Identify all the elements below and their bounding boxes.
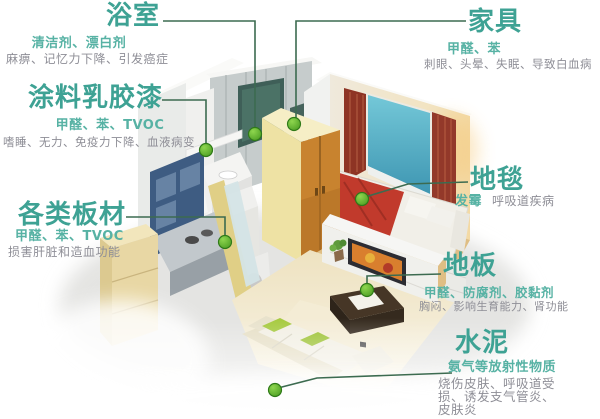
marker-cement [269, 384, 282, 397]
callout-cement-title: 水泥 [455, 329, 509, 359]
callout-cement-pollutants: 氨气等放射性物质 [448, 361, 556, 376]
callout-carpet-effects: 呼吸道疾病 [492, 194, 555, 208]
callout-floor-title: 地板 [443, 252, 497, 282]
callout-boards-title: 各类板材 [18, 201, 126, 231]
marker-boards [219, 236, 232, 249]
marker-floor [361, 284, 374, 297]
callout-floor-effects: 胸闷、影响生育能力、肾功能 [419, 301, 569, 314]
callout-furniture-effects: 刺眼、头晕、失眠、导致白血病 [424, 58, 592, 71]
marker-carpet [356, 193, 369, 206]
callout-paint-effects: 嗜睡、无力、免疫力下降、血液病变 [3, 136, 195, 149]
callout-bathroom-effects: 麻痹、记忆力下降、引发癌症 [6, 53, 169, 67]
infographic-indoor-pollution: 浴室 清洁剂、漂白剂 麻痹、记忆力下降、引发癌症 涂料乳胶漆 甲醛、苯、TVOC… [0, 0, 600, 419]
callout-floor-pollutants: 甲醛、防腐剂、胶黏剂 [424, 286, 554, 300]
callout-bathroom-title: 浴室 [106, 2, 160, 32]
callout-boards-effects: 损害肝脏和造血功能 [8, 246, 121, 260]
callout-cement-effects: 烧伤皮肤、呼吸道受损、诱发支气管炎、皮肤炎 [438, 377, 564, 416]
callout-boards-pollutants: 甲醛、苯、TVOC [15, 230, 124, 245]
callout-carpet-pollutants: 发霉 [455, 194, 482, 209]
callout-furniture-title: 家具 [468, 8, 522, 38]
marker-paint [200, 144, 213, 157]
marker-furniture [288, 118, 301, 131]
callout-paint-pollutants: 甲醛、苯、TVOC [45, 119, 175, 134]
callout-paint-title: 涂料乳胶漆 [28, 84, 163, 114]
callout-bathroom-pollutants: 清洁剂、漂白剂 [5, 37, 153, 52]
callout-furniture-pollutants: 甲醛、苯 [447, 43, 501, 58]
callout-carpet-line: 发霉呼吸道疾病 [455, 191, 555, 210]
marker-bathroom [249, 128, 262, 141]
